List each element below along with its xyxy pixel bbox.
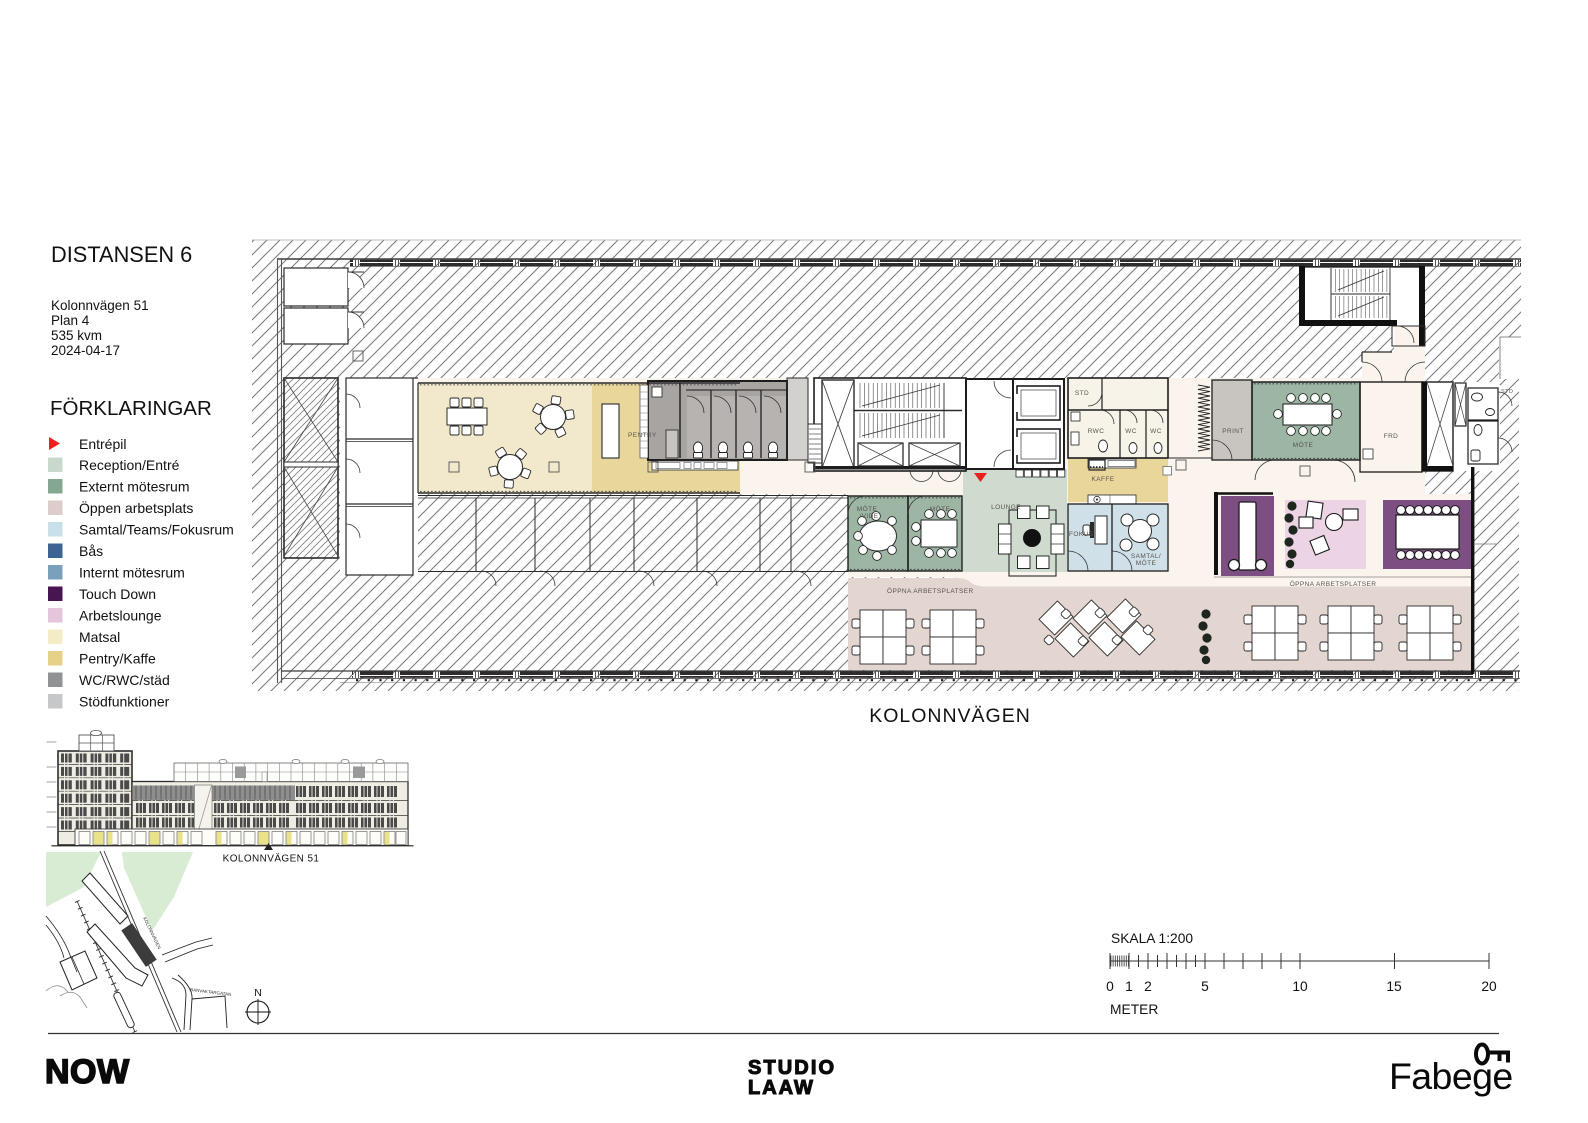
svg-text:2: 2	[1144, 979, 1152, 994]
svg-text:10: 10	[1292, 979, 1308, 994]
svg-text:MÖTE: MÖTE	[930, 505, 951, 513]
svg-text:PENTRY: PENTRY	[628, 432, 657, 439]
svg-text:KOLONNVÄGEN: KOLONNVÄGEN	[869, 705, 1031, 727]
svg-text:ÖPPNA ARBETSPLATSER: ÖPPNA ARBETSPLATSER	[887, 587, 974, 595]
svg-text:Stödfunktioner: Stödfunktioner	[79, 694, 170, 710]
svg-text:MÖTE: MÖTE	[857, 505, 878, 513]
svg-text:STD: STD	[1501, 389, 1513, 395]
svg-text:N: N	[254, 987, 262, 999]
svg-text:535 kvm: 535 kvm	[51, 328, 102, 343]
svg-text:Touch Down: Touch Down	[79, 586, 156, 602]
svg-text:/VIDE: /VIDE	[860, 513, 879, 520]
svg-text:Bås: Bås	[79, 543, 103, 559]
svg-text:Plan 4: Plan 4	[51, 313, 90, 328]
svg-text:FRD: FRD	[1384, 433, 1399, 440]
svg-text:SKALA 1:200: SKALA 1:200	[1111, 931, 1193, 946]
svg-text:ÖPPNA ARBETSPLATSER: ÖPPNA ARBETSPLATSER	[1290, 580, 1377, 588]
svg-text:STUDIO: STUDIO	[748, 1057, 836, 1079]
svg-text:20: 20	[1481, 979, 1497, 994]
svg-text:Arbetslounge: Arbetslounge	[79, 608, 162, 624]
svg-text:Fabege: Fabege	[1389, 1055, 1513, 1097]
svg-text:Matsal: Matsal	[79, 629, 120, 645]
svg-text:FÖRKLARINGAR: FÖRKLARINGAR	[50, 397, 212, 420]
svg-text:Entrépil: Entrépil	[79, 436, 126, 452]
svg-text:1: 1	[1125, 979, 1133, 994]
svg-text:WC: WC	[1125, 428, 1137, 435]
svg-text:PRINT: PRINT	[1222, 428, 1244, 435]
svg-text:5: 5	[1201, 979, 1209, 994]
svg-text:Pentry/Kaffe: Pentry/Kaffe	[79, 651, 156, 667]
svg-text:Samtal/Teams/Fokusrum: Samtal/Teams/Fokusrum	[79, 522, 234, 538]
svg-text:LAAW: LAAW	[748, 1077, 815, 1099]
svg-text:STD: STD	[1075, 390, 1089, 397]
svg-text:LOUNGE: LOUNGE	[991, 504, 1021, 511]
svg-text:0: 0	[1106, 979, 1114, 994]
svg-text:MÖTE: MÖTE	[1293, 441, 1314, 449]
svg-text:RWC: RWC	[1088, 428, 1105, 435]
svg-text:Reception/Entré: Reception/Entré	[79, 457, 180, 473]
svg-text:Kolonnvägen 51: Kolonnvägen 51	[51, 298, 149, 313]
svg-text:WC/RWC/städ: WC/RWC/städ	[79, 672, 170, 688]
svg-text:15: 15	[1386, 979, 1402, 994]
svg-text:Öppen arbetsplats: Öppen arbetsplats	[79, 499, 193, 516]
svg-text:Externt mötesrum: Externt mötesrum	[79, 479, 189, 495]
svg-text:SAMTAL/: SAMTAL/	[1131, 553, 1161, 560]
svg-text:METER: METER	[1110, 1002, 1158, 1017]
svg-text:FOKUS: FOKUS	[1069, 531, 1094, 538]
svg-text:KAFFE: KAFFE	[1092, 476, 1115, 483]
svg-text:Internt mötesrum: Internt mötesrum	[79, 565, 185, 581]
svg-text:MÖTE: MÖTE	[1136, 559, 1157, 567]
svg-text:KOLONNVÄGEN 51: KOLONNVÄGEN 51	[223, 853, 320, 865]
svg-text:WC: WC	[1150, 428, 1162, 435]
svg-text:2024-04-17: 2024-04-17	[51, 343, 120, 358]
svg-text:DISTANSEN 6: DISTANSEN 6	[51, 242, 192, 267]
svg-text:NOW: NOW	[45, 1053, 130, 1091]
